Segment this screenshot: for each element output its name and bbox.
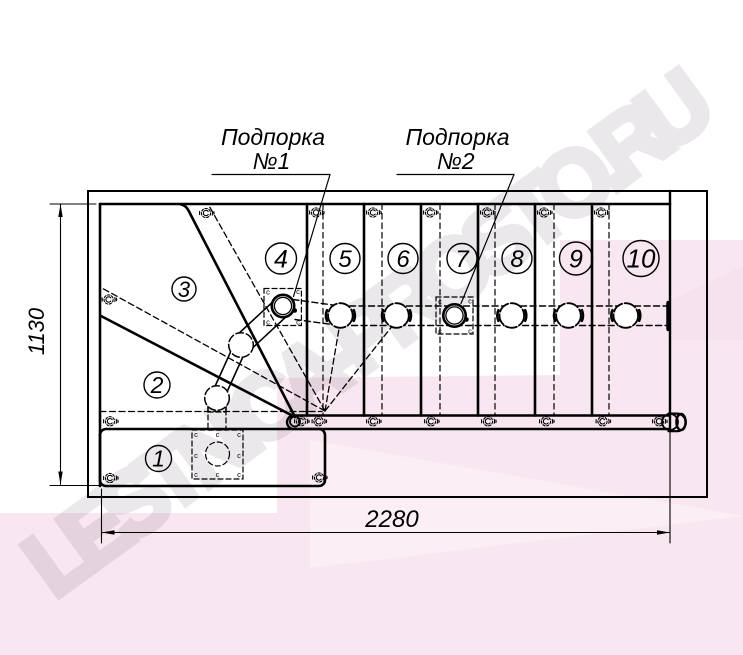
svg-text:c: c: [216, 430, 220, 439]
svg-text:c: c: [438, 327, 442, 336]
svg-text:c: c: [296, 287, 300, 296]
svg-text:c: c: [468, 297, 472, 306]
svg-text:3: 3: [178, 277, 191, 302]
svg-text:№1: №1: [253, 148, 291, 174]
svg-text:1: 1: [152, 446, 165, 472]
svg-text:c: c: [216, 470, 220, 479]
svg-text:Подпорка: Подпорка: [405, 124, 509, 150]
svg-text:c: c: [296, 318, 300, 327]
svg-text:6: 6: [396, 246, 410, 273]
svg-text:c: c: [237, 470, 241, 479]
svg-text:5: 5: [338, 246, 352, 273]
svg-text:4: 4: [274, 245, 288, 273]
svg-text:2: 2: [150, 372, 164, 398]
svg-text:c: c: [194, 451, 198, 460]
svg-text:2280: 2280: [364, 506, 419, 533]
svg-text:7: 7: [455, 246, 470, 273]
svg-text:9: 9: [569, 245, 583, 273]
svg-text:№2: №2: [437, 148, 475, 174]
svg-text:c: c: [237, 451, 241, 460]
svg-text:c: c: [266, 288, 270, 297]
svg-text:c: c: [237, 430, 241, 439]
svg-text:Подпорка: Подпорка: [221, 124, 325, 150]
svg-text:c: c: [194, 470, 198, 479]
svg-text:c: c: [438, 297, 442, 306]
svg-text:1130: 1130: [24, 307, 49, 355]
svg-text:c: c: [266, 318, 270, 327]
svg-text:8: 8: [510, 246, 524, 273]
svg-text:c: c: [194, 430, 198, 439]
svg-text:c: c: [468, 327, 472, 336]
svg-text:10: 10: [627, 244, 656, 274]
